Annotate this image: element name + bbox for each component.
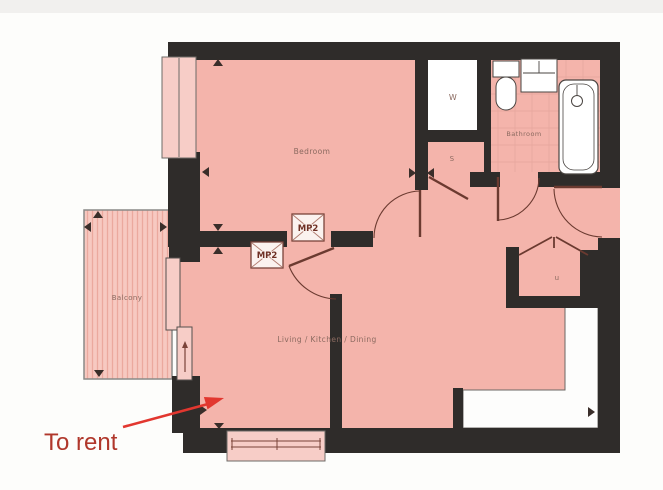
bedroom-window <box>162 57 196 158</box>
toilet-icon <box>493 61 519 110</box>
wardrobe-label: W <box>449 93 457 102</box>
utility-label: u <box>555 274 560 282</box>
to-rent-label: To rent <box>44 429 118 456</box>
mp2-marker-lower: MP2 <box>251 242 283 268</box>
floorplan-page: MP2 MP2 Bedroom Bathroom Balcony <box>0 0 663 490</box>
mp2-marker-upper: MP2 <box>292 214 324 241</box>
floorplan-drawing: MP2 MP2 Bedroom Bathroom Balcony <box>0 0 663 490</box>
storage-label: S <box>450 155 455 163</box>
mp2-upper-label: MP2 <box>298 224 319 234</box>
bedroom-label: Bedroom <box>294 147 331 156</box>
sink-icon <box>521 59 557 92</box>
balcony-label: Balcony <box>112 294 143 302</box>
living-kitchen-dining-label: Living / Kitchen / Dining <box>277 335 376 344</box>
bathtub-icon <box>559 80 598 174</box>
living-window <box>227 431 325 461</box>
mp2-lower-label: MP2 <box>257 251 278 261</box>
bathroom-label: Bathroom <box>506 130 541 138</box>
